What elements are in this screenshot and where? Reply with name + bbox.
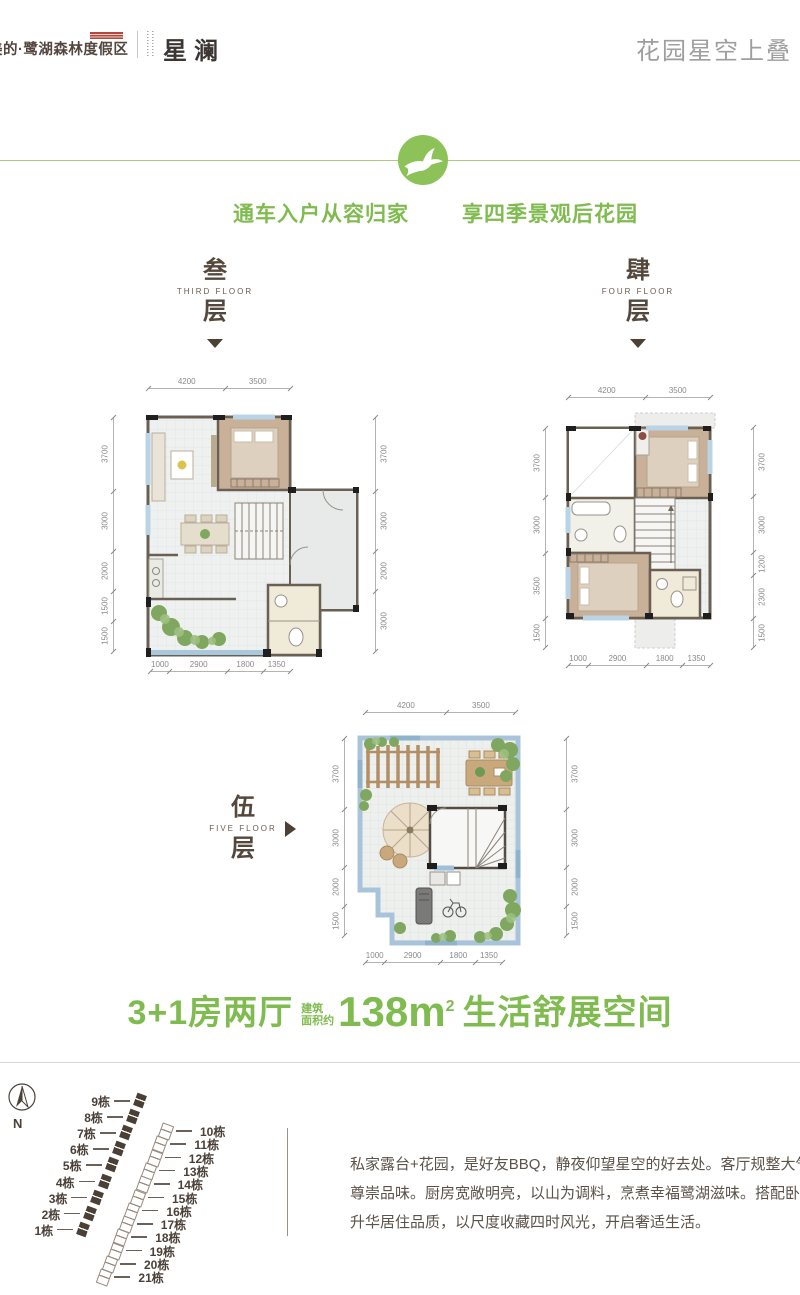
subbrand-logo: 星澜 <box>163 31 225 66</box>
arrow-down-icon <box>630 339 646 348</box>
building-leader <box>100 1132 116 1134</box>
dim-label: 2000 <box>571 878 580 896</box>
floor-plan-third: 4200350010002900180013503700300020001500… <box>85 375 400 690</box>
building-label: 1栋 <box>1 1222 53 1239</box>
building-leader <box>114 1276 130 1278</box>
dim-label: 3000 <box>101 512 110 530</box>
dim-line <box>150 671 290 672</box>
dim-label: 4200 <box>178 377 196 386</box>
building-leader <box>126 1250 142 1252</box>
building-leader <box>120 1263 136 1265</box>
dim-label: 4200 <box>397 701 415 710</box>
brand-badge-icon <box>90 32 123 39</box>
void-space <box>568 428 635 498</box>
floor-plan-drawing-third <box>85 375 400 690</box>
building-icon <box>83 1205 97 1221</box>
dim-label: 3000 <box>380 612 389 630</box>
dim-label: 3700 <box>571 765 580 783</box>
building-leader <box>154 1183 170 1185</box>
arrow-right-icon <box>285 821 296 837</box>
dim-label: 3500 <box>533 577 542 595</box>
floor-label-fourth: 肆 FOUR FLOOR 层 <box>578 258 698 348</box>
dim-label: 1800 <box>449 951 467 960</box>
dim-label: 1350 <box>687 654 705 663</box>
building-icon <box>96 1269 112 1287</box>
text-divider-line <box>287 1128 288 1236</box>
bathroom-small <box>650 570 700 618</box>
floor-cn2: 层 <box>155 299 275 325</box>
building-label: 4栋 <box>23 1174 75 1191</box>
building-leader <box>79 1181 95 1183</box>
building-icon <box>133 1093 147 1109</box>
building-leader <box>71 1197 87 1199</box>
dim-label: 2900 <box>190 660 208 669</box>
headline-area-value: 138m2 <box>338 989 454 1030</box>
dim-line <box>545 428 546 647</box>
dim-label: 3500 <box>669 386 687 395</box>
dim-label: 3000 <box>332 830 341 848</box>
building-icon <box>105 1157 119 1173</box>
dim-label: 3000 <box>758 516 767 534</box>
building-leader <box>114 1100 130 1102</box>
headline-slogan: 生活舒展空间 <box>463 996 673 1030</box>
dim-line <box>568 397 710 398</box>
brand-logo: 美的·鹭湖森林度假区 <box>0 38 128 59</box>
storage-cart <box>416 888 432 924</box>
building-leader <box>131 1236 147 1238</box>
building-leader <box>107 1116 123 1118</box>
floor-label-fifth: 伍 FIVE FLOOR 层 <box>183 795 303 862</box>
dim-label: 3000 <box>571 830 580 848</box>
dim-label: 1800 <box>656 654 674 663</box>
dim-label: 3700 <box>758 453 767 471</box>
bedroom-top <box>635 428 710 498</box>
floor-label-third: 叁 THIRD FLOOR 层 <box>155 258 275 348</box>
floor-plan-fourth: 4200350010002900180013503700300035001500… <box>525 385 800 700</box>
dim-label: 3700 <box>533 454 542 472</box>
dim-label: 1200 <box>758 555 767 573</box>
building-leader <box>176 1130 192 1132</box>
floor-plan-fifth: 4200350010002900180013503700300020001500… <box>330 700 590 1000</box>
arrow-down-icon <box>207 339 223 348</box>
dim-label: 2900 <box>608 654 626 663</box>
dim-label: 3000 <box>380 512 389 530</box>
floor-cn2: 层 <box>578 299 698 325</box>
dining-area <box>181 515 229 553</box>
building-label: 2栋 <box>8 1206 60 1223</box>
description-line: 私家露台+花园，是好友BBQ，静夜仰望星空的好去处。客厅规整大气，尽显主人 <box>350 1150 800 1179</box>
slogan-right: 享四季景观后花园 <box>462 198 638 228</box>
floor-plan-drawing-fourth <box>525 385 800 700</box>
page-tagline: 花园星空上叠 <box>636 31 792 66</box>
building-label: 7栋 <box>44 1125 96 1142</box>
building-icon <box>98 1173 112 1189</box>
building-leader <box>165 1157 181 1159</box>
dim-line <box>148 388 290 389</box>
dim-label: 2000 <box>332 878 341 896</box>
egret-icon <box>398 135 448 185</box>
dim-line <box>375 417 376 651</box>
dim-label: 1350 <box>268 660 286 669</box>
building-label: 9栋 <box>58 1093 110 1110</box>
building-leader <box>64 1213 80 1215</box>
bathroom-mid <box>568 498 635 553</box>
description-line: 尊崇品味。厨房宽敞明亮，以山为调料，烹煮幸福鹭湖滋味。搭配卧室飘窗，以 <box>350 1179 800 1208</box>
bathroom <box>268 585 320 655</box>
north-arrow-icon <box>6 1082 38 1114</box>
dim-label: 1500 <box>332 912 341 930</box>
building-leader <box>86 1164 102 1166</box>
headline-area-note: 建筑面积约 <box>301 1003 334 1027</box>
slogan-left: 通车入户从容归家 <box>233 198 409 228</box>
bedroom-bottom <box>568 553 650 618</box>
dim-label: 3500 <box>472 701 490 710</box>
building-icon <box>76 1221 90 1237</box>
dim-line <box>365 712 515 713</box>
building-leader <box>170 1143 186 1145</box>
building-icon <box>112 1141 126 1157</box>
site-plan: N 9栋8栋7栋6栋5栋4栋3栋2栋1栋10栋11栋12栋13栋14栋15栋16… <box>0 1080 340 1295</box>
floor-en: FOUR FLOOR <box>578 287 698 296</box>
building-leader <box>148 1197 164 1199</box>
description-text: 私家露台+花园，是好友BBQ，静夜仰望星空的好去处。客厅规整大气，尽显主人 尊崇… <box>350 1150 800 1237</box>
dim-label: 1500 <box>758 624 767 642</box>
dim-label: 1000 <box>569 654 587 663</box>
headline-rooms: 3+1房两厅 <box>127 996 293 1030</box>
dim-label: 4200 <box>598 386 616 395</box>
dim-label: 1350 <box>480 951 498 960</box>
building-label: 8栋 <box>51 1109 103 1126</box>
headline: 3+1房两厅 建筑面积约 138m2 生活舒展空间 <box>0 986 800 1030</box>
floor-cn: 叁 <box>155 258 275 284</box>
description-line: 升华居住品质，以尺度收藏四时风光，开启奢适生活。 <box>350 1208 800 1237</box>
dim-label: 1800 <box>236 660 254 669</box>
dim-label: 3500 <box>249 377 267 386</box>
building-label: 21栋 <box>138 1269 163 1286</box>
building-icon <box>90 1189 104 1205</box>
dim-label: 1500 <box>101 627 110 645</box>
dim-label: 2000 <box>101 562 110 580</box>
footer-divider-line <box>0 1062 800 1063</box>
dim-line <box>753 427 754 647</box>
north-label: N <box>13 1116 22 1131</box>
building-leader <box>57 1229 73 1231</box>
building-leader <box>93 1148 109 1150</box>
floor-en: THIRD FLOOR <box>155 287 275 296</box>
dim-label: 3000 <box>533 516 542 534</box>
building-icon <box>126 1109 140 1125</box>
building-icon <box>119 1125 133 1141</box>
logo-vertical-text <box>146 31 155 58</box>
building-leader <box>137 1223 153 1225</box>
building-leader <box>159 1170 175 1172</box>
dim-line <box>113 417 114 651</box>
dim-label: 1000 <box>151 660 169 669</box>
dim-label: 1500 <box>101 597 110 615</box>
bedroom <box>218 417 290 490</box>
floor-cn: 伍 <box>183 795 303 821</box>
dim-label: 3700 <box>380 445 389 463</box>
brand-divider <box>137 31 138 58</box>
building-label: 6栋 <box>37 1141 89 1158</box>
dim-label: 2000 <box>380 562 389 580</box>
floor-cn: 肆 <box>578 258 698 284</box>
building-label: 5栋 <box>30 1157 82 1174</box>
building-label: 3栋 <box>15 1190 67 1207</box>
dim-label: 1000 <box>366 951 384 960</box>
dim-label: 3700 <box>101 445 110 463</box>
dim-label: 2900 <box>404 951 422 960</box>
building-leader <box>142 1210 158 1212</box>
dim-label: 3700 <box>332 765 341 783</box>
dim-label: 1500 <box>533 624 542 642</box>
ghost-balcony-bottom <box>635 618 675 648</box>
stairs <box>235 503 283 559</box>
dim-label: 1500 <box>571 912 580 930</box>
dim-label: 2300 <box>758 588 767 606</box>
floor-cn2: 层 <box>183 836 303 862</box>
